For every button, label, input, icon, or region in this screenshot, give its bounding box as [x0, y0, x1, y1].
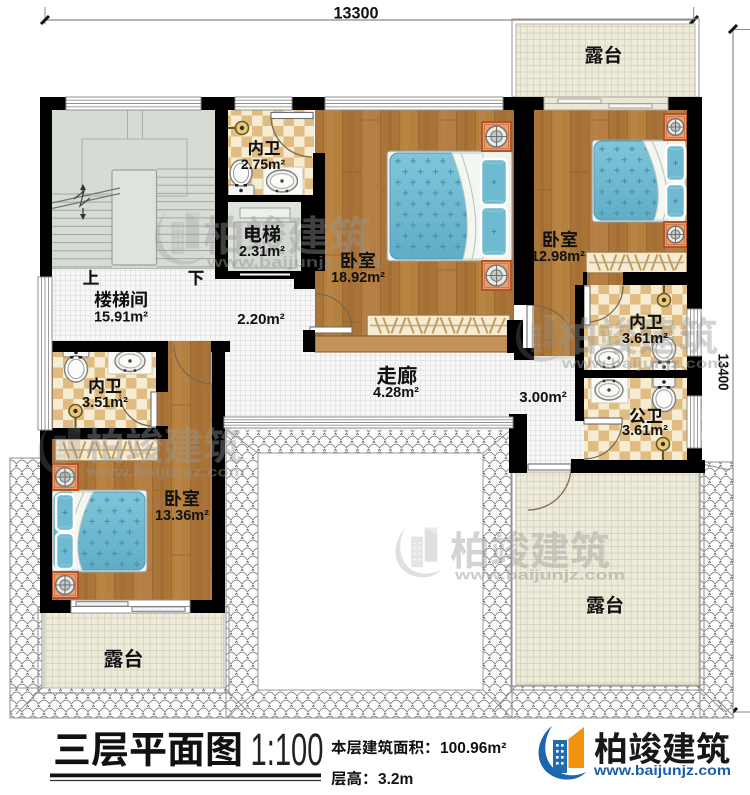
svg-text:1:100: 1:100 [251, 724, 324, 775]
svg-text:15.91m²: 15.91m² [94, 310, 148, 326]
svg-text:www.baijunjz.com: www.baijunjz.com [85, 464, 245, 480]
svg-text:3.61m²: 3.61m² [622, 331, 668, 347]
svg-text:12.98m²: 12.98m² [531, 249, 585, 265]
svg-text:2.31m²: 2.31m² [239, 244, 285, 260]
svg-text:2.75m²: 2.75m² [241, 156, 286, 172]
svg-text:www.baijunjz.com: www.baijunjz.com [206, 254, 381, 271]
svg-text:18.92m²: 18.92m² [331, 270, 385, 286]
svg-text:www.baijunjz.com: www.baijunjz.com [561, 356, 724, 371]
svg-text:2.20m²: 2.20m² [237, 311, 285, 328]
svg-text:100.96m²: 100.96m² [440, 740, 506, 757]
svg-text:13.36m²: 13.36m² [155, 508, 209, 524]
svg-text:3.51m²: 3.51m² [82, 395, 128, 411]
svg-text:www.baijunjz.com: www.baijunjz.com [454, 567, 625, 583]
svg-text:4.28m²: 4.28m² [373, 385, 419, 401]
svg-text:3.00m²: 3.00m² [519, 389, 567, 406]
svg-text:3.2m: 3.2m [378, 771, 413, 788]
svg-text:3.61m²: 3.61m² [622, 423, 668, 439]
svg-text:www.baijunjz.com: www.baijunjz.com [593, 762, 731, 778]
svg-text:13300: 13300 [334, 4, 379, 23]
